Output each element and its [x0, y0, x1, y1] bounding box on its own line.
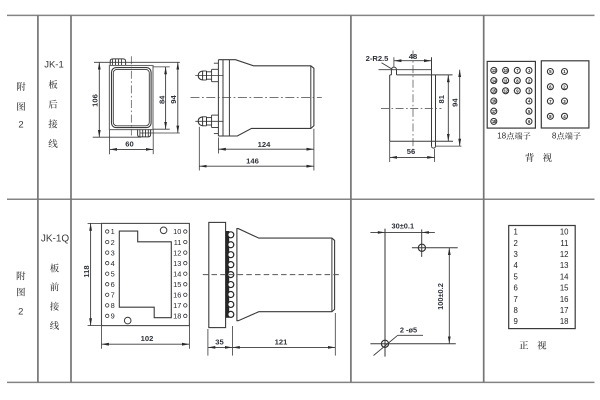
svg-text:9: 9: [111, 312, 115, 321]
svg-text:7: 7: [514, 295, 518, 304]
svg-text:7: 7: [549, 99, 552, 104]
svg-text:1: 1: [514, 228, 518, 237]
svg-text:30±0.1: 30±0.1: [392, 222, 415, 231]
svg-text:94: 94: [169, 95, 178, 104]
svg-text:15: 15: [560, 284, 569, 293]
svg-text:12: 12: [560, 250, 569, 259]
svg-text:11: 11: [560, 239, 568, 248]
svg-text:6: 6: [514, 284, 518, 293]
svg-text:118: 118: [82, 265, 91, 277]
svg-text:2: 2: [514, 239, 518, 248]
svg-text:14: 14: [560, 272, 569, 281]
svg-text:JK-1Q: JK-1Q: [41, 233, 70, 244]
svg-text:9: 9: [514, 317, 518, 326]
svg-text:106: 106: [91, 94, 100, 107]
svg-text:2: 2: [18, 120, 23, 131]
svg-text:4: 4: [514, 261, 519, 270]
svg-text:121: 121: [275, 338, 288, 347]
svg-text:124: 124: [258, 140, 271, 149]
svg-text:12: 12: [173, 248, 181, 257]
svg-text:146: 146: [246, 157, 259, 166]
svg-text:5: 5: [514, 272, 519, 281]
svg-text:8: 8: [549, 114, 552, 119]
svg-text:14: 14: [173, 269, 181, 278]
svg-text:1: 1: [111, 227, 115, 236]
svg-text:8: 8: [111, 301, 115, 310]
svg-text:13: 13: [560, 261, 569, 270]
svg-text:2: 2: [111, 238, 115, 247]
svg-text:10: 10: [173, 227, 181, 236]
svg-text:1: 1: [563, 69, 566, 74]
svg-text:56: 56: [407, 147, 415, 156]
svg-text:18: 18: [173, 312, 181, 321]
svg-text:6: 6: [549, 84, 552, 89]
svg-text:81: 81: [437, 94, 446, 103]
svg-text:8: 8: [514, 306, 518, 315]
svg-text:8: 8: [552, 131, 557, 140]
svg-text:5: 5: [549, 69, 552, 74]
svg-text:102: 102: [141, 334, 154, 343]
svg-text:18: 18: [497, 131, 507, 140]
svg-text:2: 2: [563, 84, 566, 89]
svg-text:17: 17: [173, 301, 181, 310]
svg-text:48: 48: [409, 52, 417, 61]
svg-text:100±0.2: 100±0.2: [436, 283, 445, 310]
svg-text:3: 3: [514, 250, 518, 259]
svg-text:JK-1: JK-1: [44, 59, 64, 70]
svg-text:18: 18: [560, 317, 569, 326]
svg-text:2: 2: [18, 307, 23, 318]
svg-text:16: 16: [560, 295, 569, 304]
svg-text:35: 35: [215, 338, 224, 347]
svg-text:5: 5: [111, 269, 115, 278]
svg-text:94: 94: [451, 98, 460, 107]
svg-text:13: 13: [173, 259, 181, 268]
svg-text:3: 3: [563, 99, 566, 104]
svg-text:4: 4: [111, 259, 115, 268]
svg-text:10: 10: [560, 228, 569, 237]
svg-text:16: 16: [173, 291, 181, 300]
svg-text:6: 6: [111, 280, 115, 289]
svg-text:60: 60: [125, 140, 133, 149]
svg-text:11: 11: [174, 238, 182, 247]
svg-text:2 -ø5: 2 -ø5: [400, 326, 417, 335]
svg-text:17: 17: [560, 306, 569, 315]
svg-text:2-R2.5: 2-R2.5: [366, 54, 390, 63]
svg-text:84: 84: [157, 95, 166, 104]
svg-text:3: 3: [111, 248, 115, 257]
svg-text:15: 15: [173, 280, 181, 289]
svg-text:4: 4: [563, 114, 566, 119]
svg-text:7: 7: [111, 291, 115, 300]
